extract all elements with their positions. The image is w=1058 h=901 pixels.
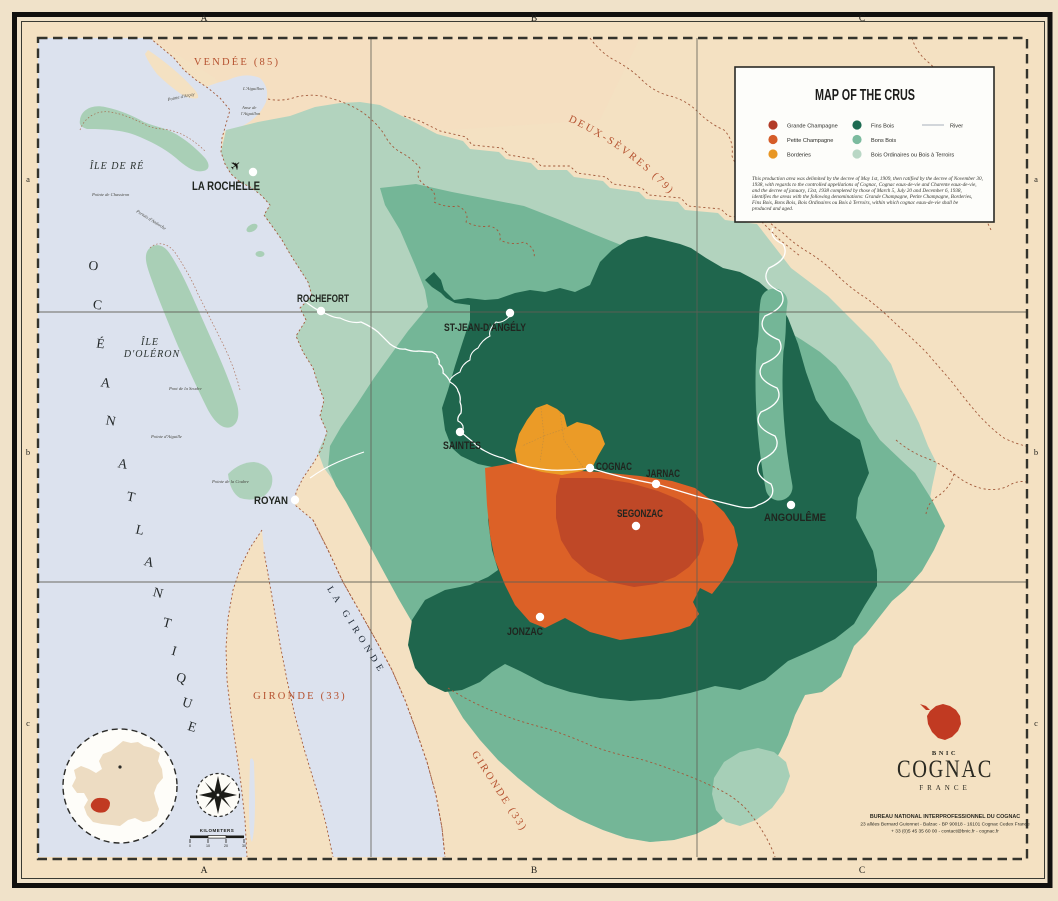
svg-text:identifies the areas with the: identifies the areas with the following … [752, 193, 972, 200]
svg-text:Bons Bois: Bons Bois [871, 138, 896, 144]
svg-text:B: B [531, 866, 537, 876]
svg-text:ST-JEAN-D'ANGÉLY: ST-JEAN-D'ANGÉLY [444, 321, 527, 334]
svg-text:River: River [950, 124, 963, 130]
svg-text:C: C [92, 297, 103, 313]
svg-text:30: 30 [242, 844, 246, 848]
svg-text:23 allées Bernard Guionnet - B: 23 allées Bernard Guionnet - Balzac - BP… [860, 822, 1030, 828]
svg-text:Bois Ordinaires ou Bois à Terr: Bois Ordinaires ou Bois à Terroirs [871, 153, 954, 159]
svg-text:FRANCE: FRANCE [919, 784, 971, 792]
svg-text:0: 0 [189, 844, 191, 848]
svg-text:O: O [88, 258, 100, 274]
svg-text:D'OLÉRON: D'OLÉRON [123, 348, 181, 360]
svg-text:ANGOULÊME: ANGOULÊME [764, 511, 826, 524]
svg-text:VENDÉE (85): VENDÉE (85) [194, 56, 280, 68]
svg-text:c: c [26, 718, 30, 728]
svg-text:C: C [859, 14, 865, 24]
svg-text:b: b [26, 447, 30, 457]
svg-text:C: C [859, 866, 865, 876]
svg-text:JARNAC: JARNAC [646, 468, 680, 480]
svg-text:KILOMETERS: KILOMETERS [200, 828, 235, 833]
svg-text:Borderies: Borderies [787, 153, 811, 159]
svg-text:Petite Champagne: Petite Champagne [787, 138, 833, 144]
svg-text:A: A [201, 866, 208, 876]
svg-text:Grande Champagne: Grande Champagne [787, 124, 838, 130]
svg-text:JONZAC: JONZAC [507, 626, 543, 638]
svg-text:20: 20 [224, 844, 228, 848]
svg-text:ROYAN: ROYAN [254, 495, 288, 507]
svg-text:Anse de: Anse de [241, 105, 256, 110]
svg-text:a: a [26, 174, 30, 184]
svg-text:10: 10 [206, 844, 210, 848]
svg-text:+ 33 (0)5 45 35 60 00 - contac: + 33 (0)5 45 35 60 00 - contact@bnic.fr … [891, 829, 999, 835]
svg-text:Fins Bois: Fins Bois [871, 124, 894, 130]
svg-text:COGNAC: COGNAC [596, 461, 632, 473]
svg-text:c: c [1034, 718, 1038, 728]
svg-text:B: B [531, 14, 537, 24]
svg-text:a: a [1034, 174, 1038, 184]
svg-text:ROCHEFORT: ROCHEFORT [297, 293, 349, 305]
svg-text:BUREAU NATIONAL INTERPROFESSIO: BUREAU NATIONAL INTERPROFESSIONNEL DU CO… [870, 814, 1020, 820]
svg-text:MAP OF THE CRUS: MAP OF THE CRUS [815, 87, 915, 104]
svg-text:LA ROCHELLE: LA ROCHELLE [192, 181, 260, 193]
svg-text:ÎLE DE RÉ: ÎLE DE RÉ [89, 160, 145, 172]
svg-text:b: b [1034, 447, 1038, 457]
svg-text:Pointe de la Coubre: Pointe de la Coubre [211, 479, 249, 484]
svg-text:ÎLE: ÎLE [140, 336, 159, 348]
svg-text:A: A [201, 14, 208, 24]
svg-text:GIRONDE (33): GIRONDE (33) [253, 691, 347, 702]
svg-text:and the decree of january, 13s: and the decree of january, 13st, 1938 co… [752, 187, 962, 194]
svg-text:l'Aiguillon: l'Aiguillon [241, 111, 261, 116]
svg-text:SAINTES: SAINTES [443, 440, 481, 452]
svg-text:produced and aged.: produced and aged. [751, 206, 793, 212]
svg-text:Pointe de Chassiron: Pointe de Chassiron [91, 192, 130, 197]
svg-text:This production area was delim: This production area was delimited by th… [752, 175, 983, 182]
svg-text:SEGONZAC: SEGONZAC [617, 508, 663, 520]
svg-text:L'Aiguillon: L'Aiguillon [242, 86, 264, 91]
svg-text:1938, with regards to the cont: 1938, with regards to the controlled app… [752, 181, 977, 188]
svg-text:Pont de la Seudre: Pont de la Seudre [168, 386, 202, 391]
svg-text:COGNAC: COGNAC [897, 756, 993, 783]
svg-text:Pointe d'Aiguille: Pointe d'Aiguille [150, 434, 182, 439]
